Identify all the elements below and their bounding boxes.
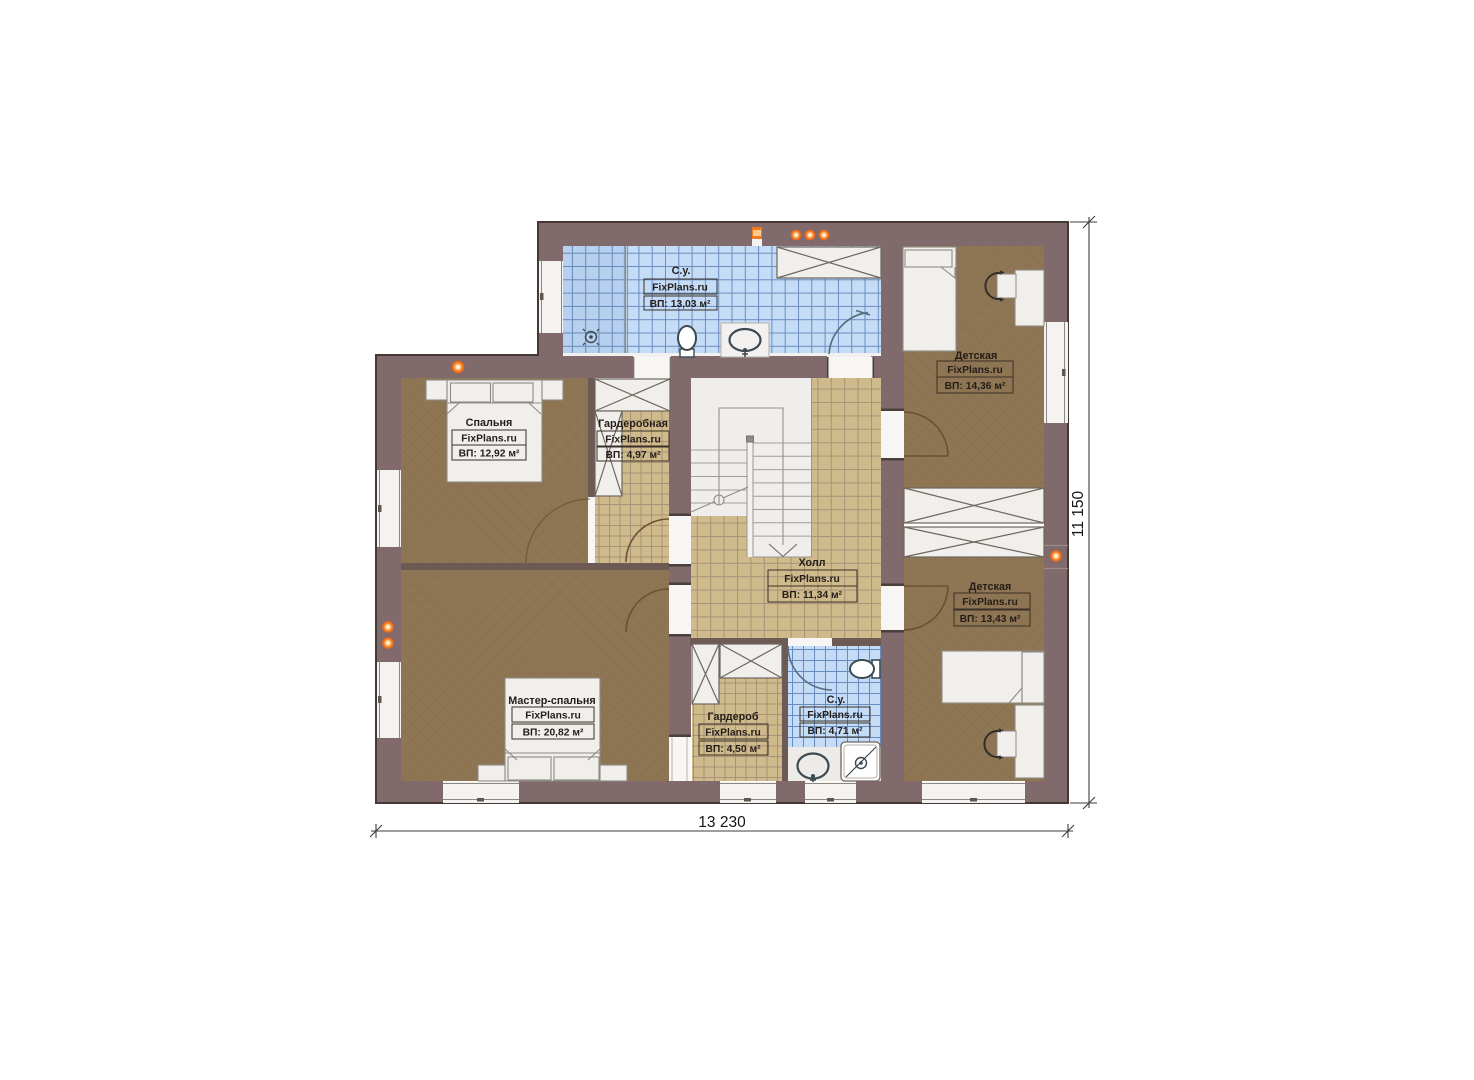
svg-text:11 150: 11 150 <box>1070 490 1087 537</box>
svg-text:FixPlans.ru: FixPlans.ru <box>705 728 761 739</box>
svg-text:С.у.: С.у. <box>672 265 691 277</box>
svg-text:FixPlans.ru: FixPlans.ru <box>525 711 581 722</box>
svg-text:ВП: 11,34 м²: ВП: 11,34 м² <box>782 590 843 601</box>
svg-text:FixPlans.ru: FixPlans.ru <box>947 365 1003 376</box>
svg-text:Холл: Холл <box>798 557 825 569</box>
svg-text:ВП: 20,82 м²: ВП: 20,82 м² <box>523 728 584 739</box>
svg-text:ВП: 13,43 м²: ВП: 13,43 м² <box>960 614 1021 625</box>
svg-text:ВП: 13,03 м²: ВП: 13,03 м² <box>650 299 711 310</box>
svg-text:Гардеробная: Гардеробная <box>598 418 668 430</box>
svg-text:FixPlans.ru: FixPlans.ru <box>807 710 863 721</box>
svg-text:Спальня: Спальня <box>466 417 513 429</box>
svg-text:ВП: 4,71 м²: ВП: 4,71 м² <box>807 726 863 737</box>
svg-text:ВП: 4,97 м²: ВП: 4,97 м² <box>605 450 661 461</box>
svg-text:С.у.: С.у. <box>827 694 846 706</box>
svg-text:Детская: Детская <box>955 350 998 362</box>
svg-text:Гардероб: Гардероб <box>707 711 758 723</box>
svg-text:ВП: 12,92 м²: ВП: 12,92 м² <box>459 449 520 460</box>
svg-text:ВП: 14,36 м²: ВП: 14,36 м² <box>945 381 1006 392</box>
svg-text:Мастер-спальня: Мастер-спальня <box>508 695 595 707</box>
svg-text:Детская: Детская <box>969 581 1012 593</box>
svg-text:FixPlans.ru: FixPlans.ru <box>461 434 517 445</box>
svg-text:FixPlans.ru: FixPlans.ru <box>605 435 661 446</box>
svg-text:FixPlans.ru: FixPlans.ru <box>784 574 840 585</box>
svg-text:FixPlans.ru: FixPlans.ru <box>962 597 1018 608</box>
svg-text:FixPlans.ru: FixPlans.ru <box>652 283 708 294</box>
svg-text:ВП: 4,50 м²: ВП: 4,50 м² <box>705 744 761 755</box>
svg-text:13 230: 13 230 <box>698 814 746 831</box>
